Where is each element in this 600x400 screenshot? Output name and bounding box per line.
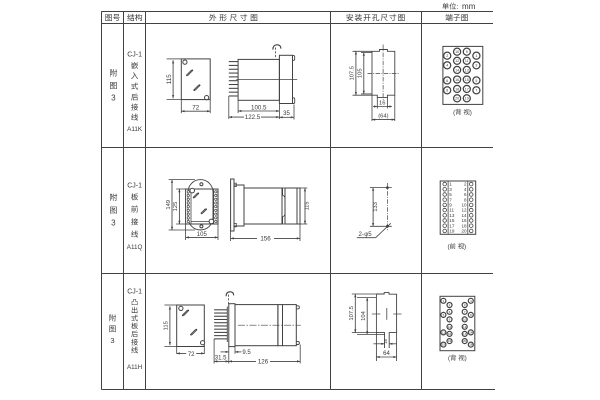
svg-text:20: 20 (461, 229, 467, 234)
svg-text:4: 4 (446, 64, 448, 68)
svg-text:100.5: 100.5 (251, 104, 267, 111)
svg-text:105: 105 (358, 68, 364, 78)
svg-text:7: 7 (475, 89, 477, 93)
svg-text:16: 16 (379, 101, 385, 107)
svg-text:2: 2 (446, 54, 448, 58)
svg-text:126: 126 (258, 359, 269, 366)
svg-text:A11K: A11K (127, 126, 143, 133)
svg-text:φ5: φ5 (364, 232, 372, 238)
svg-text:): ) (464, 244, 466, 251)
svg-text:CJ-1: CJ-1 (127, 289, 142, 296)
svg-text:2-: 2- (359, 232, 364, 238)
svg-text:12: 12 (455, 59, 459, 63)
svg-text:11: 11 (442, 331, 445, 335)
svg-text:156: 156 (260, 235, 271, 242)
svg-text:107.5: 107.5 (349, 306, 355, 321)
svg-text:13: 13 (465, 68, 469, 72)
svg-text:5: 5 (475, 79, 477, 83)
svg-text:1: 1 (475, 54, 477, 58)
svg-text:19: 19 (448, 339, 452, 343)
svg-text:CJ-1: CJ-1 (127, 183, 142, 190)
svg-text:17: 17 (463, 332, 467, 336)
svg-text:149: 149 (166, 200, 172, 210)
svg-text:104: 104 (361, 310, 367, 320)
svg-text:3: 3 (111, 94, 116, 103)
svg-text:3: 3 (110, 336, 114, 345)
svg-text:3: 3 (475, 64, 477, 68)
svg-text:13: 13 (463, 325, 467, 329)
svg-text:20: 20 (463, 339, 467, 343)
svg-text:107.5: 107.5 (350, 66, 356, 81)
svg-text:16: 16 (455, 78, 459, 82)
svg-text:10: 10 (463, 318, 467, 322)
svg-text:18: 18 (455, 87, 459, 91)
svg-text:18: 18 (469, 343, 473, 347)
svg-text:15: 15 (465, 78, 469, 82)
svg-text:mm: mm (462, 2, 476, 11)
svg-text:17: 17 (465, 87, 469, 91)
svg-text:11: 11 (465, 59, 469, 63)
svg-text:): ) (465, 355, 467, 362)
svg-text:CJ-1: CJ-1 (127, 52, 142, 59)
svg-text:72: 72 (188, 352, 195, 358)
svg-text:125: 125 (173, 202, 179, 212)
svg-text:115: 115 (166, 74, 173, 84)
svg-text:115: 115 (164, 321, 170, 330)
svg-text:35: 35 (283, 111, 290, 117)
svg-text:19: 19 (449, 229, 455, 234)
svg-text:9: 9 (466, 50, 468, 54)
svg-text:(64): (64) (378, 114, 388, 120)
svg-text::: : (457, 4, 459, 11)
svg-text:): ) (470, 109, 472, 116)
svg-text:16: 16 (383, 339, 388, 345)
svg-text:10: 10 (455, 50, 459, 54)
svg-text:6: 6 (446, 79, 448, 83)
svg-text:14: 14 (455, 68, 459, 72)
svg-text:14: 14 (469, 331, 473, 335)
svg-text:133: 133 (373, 202, 379, 212)
svg-text:64: 64 (383, 351, 390, 357)
svg-text:12: 12 (448, 325, 452, 329)
svg-text:A11Q: A11Q (127, 244, 143, 251)
svg-text:122.5: 122.5 (245, 114, 261, 121)
svg-text:72: 72 (192, 105, 199, 112)
svg-text:19: 19 (465, 97, 469, 101)
svg-text:8: 8 (446, 89, 448, 93)
svg-text:20: 20 (455, 97, 459, 101)
svg-text:9.5: 9.5 (242, 350, 251, 356)
svg-text:105: 105 (197, 232, 208, 238)
svg-text:115: 115 (304, 202, 310, 211)
svg-text:A11H: A11H (127, 364, 143, 371)
svg-text:16: 16 (448, 332, 452, 336)
svg-text:3: 3 (111, 218, 116, 227)
svg-text:15: 15 (442, 343, 446, 347)
svg-text:31.5: 31.5 (215, 355, 227, 361)
